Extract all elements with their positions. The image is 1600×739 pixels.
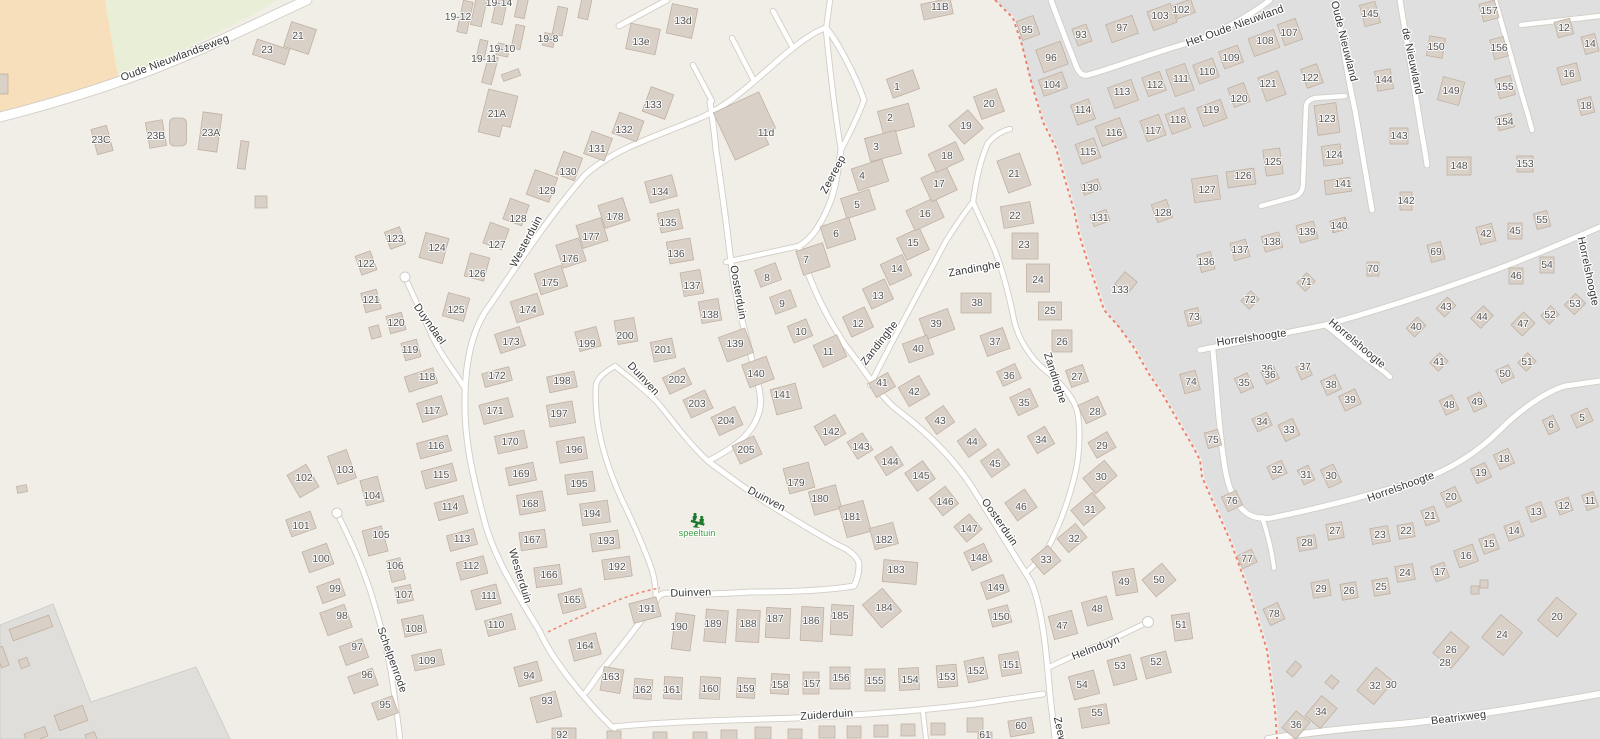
svg-text:151: 151 — [1002, 660, 1020, 671]
svg-text:5: 5 — [1579, 413, 1585, 424]
svg-text:53: 53 — [1569, 299, 1581, 310]
svg-text:156: 156 — [1490, 43, 1508, 54]
svg-text:165: 165 — [563, 595, 581, 606]
svg-text:195: 195 — [570, 479, 588, 490]
svg-text:126: 126 — [1234, 171, 1252, 182]
svg-text:25: 25 — [1044, 306, 1056, 317]
svg-text:12: 12 — [1558, 23, 1570, 34]
svg-text:110: 110 — [488, 620, 505, 631]
svg-text:134: 134 — [651, 187, 669, 198]
svg-text:133: 133 — [644, 100, 662, 111]
svg-text:47: 47 — [1517, 319, 1529, 330]
svg-text:155: 155 — [866, 676, 884, 687]
svg-text:53: 53 — [1114, 661, 1126, 672]
svg-text:174: 174 — [519, 305, 537, 316]
svg-text:32: 32 — [1068, 534, 1080, 545]
svg-text:97: 97 — [351, 642, 363, 653]
svg-text:6: 6 — [1548, 420, 1554, 431]
svg-text:18: 18 — [1498, 454, 1510, 465]
svg-text:3: 3 — [873, 142, 879, 153]
svg-text:55: 55 — [1091, 708, 1103, 719]
svg-text:36: 36 — [1264, 370, 1276, 381]
svg-text:127: 127 — [1198, 185, 1216, 196]
svg-text:181: 181 — [843, 512, 861, 523]
svg-text:158: 158 — [771, 680, 789, 691]
svg-text:111: 111 — [1173, 74, 1189, 85]
svg-text:49: 49 — [1471, 397, 1483, 408]
svg-text:11d: 11d — [758, 128, 775, 139]
svg-text:42: 42 — [1480, 229, 1492, 240]
svg-text:142: 142 — [822, 427, 840, 438]
svg-text:15: 15 — [907, 238, 919, 249]
svg-text:11: 11 — [823, 347, 834, 358]
svg-text:150: 150 — [992, 612, 1010, 623]
svg-text:115: 115 — [1080, 147, 1097, 158]
svg-text:69: 69 — [1430, 247, 1442, 258]
svg-text:138: 138 — [701, 310, 719, 321]
svg-text:61: 61 — [979, 730, 991, 739]
svg-text:202: 202 — [668, 375, 686, 386]
svg-text:146: 146 — [936, 497, 954, 508]
svg-text:198: 198 — [553, 376, 571, 387]
svg-text:103: 103 — [1151, 11, 1169, 22]
svg-text:77: 77 — [1241, 554, 1253, 565]
svg-text:98: 98 — [336, 611, 348, 622]
svg-text:13d: 13d — [674, 16, 692, 27]
svg-text:108: 108 — [1256, 36, 1274, 47]
svg-text:30: 30 — [1325, 471, 1337, 482]
svg-text:20: 20 — [983, 99, 995, 110]
svg-text:31: 31 — [1300, 470, 1312, 481]
svg-text:145: 145 — [1361, 9, 1379, 20]
svg-text:156: 156 — [832, 673, 850, 684]
svg-text:33: 33 — [1283, 425, 1295, 436]
svg-text:106: 106 — [386, 561, 404, 572]
svg-text:73: 73 — [1188, 312, 1200, 323]
svg-text:135: 135 — [659, 218, 677, 229]
svg-text:95: 95 — [1021, 25, 1033, 36]
svg-text:122: 122 — [1301, 73, 1319, 84]
svg-text:76: 76 — [1226, 496, 1238, 507]
svg-text:129: 129 — [538, 186, 556, 197]
svg-text:25: 25 — [1375, 582, 1387, 593]
svg-text:36: 36 — [1003, 371, 1015, 382]
svg-text:74: 74 — [1185, 377, 1197, 388]
svg-text:8: 8 — [764, 273, 770, 284]
svg-text:46: 46 — [1510, 271, 1522, 282]
svg-text:131: 131 — [1091, 213, 1109, 224]
svg-text:2: 2 — [887, 113, 893, 124]
svg-text:16: 16 — [919, 209, 931, 220]
svg-text:149: 149 — [987, 583, 1005, 594]
svg-text:115: 115 — [433, 470, 450, 481]
svg-text:16: 16 — [1563, 69, 1575, 80]
svg-text:47: 47 — [1056, 621, 1068, 632]
svg-text:11: 11 — [1585, 496, 1596, 507]
svg-text:153: 153 — [1516, 159, 1534, 170]
svg-text:139: 139 — [726, 339, 744, 350]
svg-text:172: 172 — [488, 371, 506, 382]
svg-text:32: 32 — [1369, 681, 1381, 692]
svg-text:52: 52 — [1150, 657, 1162, 668]
svg-text:78: 78 — [1268, 609, 1280, 620]
svg-text:104: 104 — [1043, 80, 1061, 91]
svg-text:32: 32 — [1271, 465, 1283, 476]
svg-text:139: 139 — [1298, 227, 1316, 238]
svg-text:189: 189 — [704, 619, 722, 630]
svg-text:22: 22 — [1009, 211, 1021, 222]
svg-text:11B: 11B — [931, 2, 949, 13]
svg-text:5: 5 — [854, 200, 860, 211]
svg-text:138: 138 — [1263, 237, 1281, 248]
svg-text:114: 114 — [1075, 105, 1092, 116]
svg-text:125: 125 — [1264, 157, 1282, 168]
svg-text:164: 164 — [576, 641, 594, 652]
svg-text:7: 7 — [803, 255, 809, 266]
svg-text:Duinven: Duinven — [670, 586, 711, 599]
svg-text:12: 12 — [852, 319, 864, 330]
svg-text:70: 70 — [1367, 264, 1379, 275]
svg-text:187: 187 — [766, 614, 784, 625]
svg-text:120: 120 — [387, 318, 405, 329]
svg-text:162: 162 — [634, 685, 652, 696]
svg-text:45: 45 — [1509, 226, 1521, 237]
svg-text:105: 105 — [372, 530, 390, 541]
svg-text:102: 102 — [295, 473, 313, 484]
svg-text:168: 168 — [521, 499, 539, 510]
svg-text:126: 126 — [468, 269, 486, 280]
svg-text:97: 97 — [1116, 23, 1128, 34]
svg-text:45: 45 — [989, 459, 1001, 470]
svg-text:204: 204 — [717, 416, 735, 427]
svg-text:137: 137 — [683, 281, 701, 292]
svg-text:99: 99 — [329, 584, 341, 595]
svg-text:128: 128 — [509, 214, 527, 225]
svg-text:143: 143 — [1390, 131, 1408, 142]
svg-text:26: 26 — [1445, 645, 1457, 656]
svg-text:180: 180 — [811, 494, 829, 505]
svg-text:1: 1 — [894, 82, 900, 93]
svg-text:154: 154 — [901, 675, 919, 686]
svg-text:24: 24 — [1399, 568, 1411, 579]
svg-text:19-12: 19-12 — [445, 12, 472, 23]
svg-text:95: 95 — [379, 700, 391, 711]
svg-text:113: 113 — [1114, 87, 1131, 98]
svg-text:48: 48 — [1091, 604, 1103, 615]
svg-text:speeltuin: speeltuin — [679, 528, 716, 538]
svg-text:177: 177 — [582, 232, 600, 243]
svg-text:35: 35 — [1238, 378, 1250, 389]
svg-text:51: 51 — [1175, 620, 1187, 631]
svg-text:117: 117 — [1145, 126, 1162, 137]
svg-text:143: 143 — [852, 442, 870, 453]
svg-text:121: 121 — [1259, 79, 1277, 90]
svg-text:10: 10 — [795, 327, 807, 338]
svg-text:34: 34 — [1315, 707, 1327, 718]
svg-text:18: 18 — [941, 151, 953, 162]
svg-text:173: 173 — [502, 337, 520, 348]
svg-text:203: 203 — [688, 399, 706, 410]
svg-text:142: 142 — [1397, 196, 1415, 207]
svg-text:112: 112 — [1147, 80, 1164, 91]
svg-text:19-8: 19-8 — [538, 34, 559, 45]
svg-text:171: 171 — [486, 406, 504, 417]
svg-text:145: 145 — [912, 471, 930, 482]
svg-text:140: 140 — [747, 369, 765, 380]
svg-text:176: 176 — [561, 254, 579, 265]
svg-text:103: 103 — [336, 465, 354, 476]
svg-text:44: 44 — [1476, 312, 1488, 323]
svg-text:200: 200 — [616, 331, 634, 342]
svg-text:35: 35 — [1018, 398, 1030, 409]
svg-text:144: 144 — [881, 457, 899, 468]
svg-text:28: 28 — [1439, 658, 1451, 669]
svg-text:26: 26 — [1343, 586, 1355, 597]
svg-text:21: 21 — [1008, 169, 1020, 180]
svg-text:55: 55 — [1536, 215, 1548, 226]
svg-text:41: 41 — [876, 378, 888, 389]
svg-text:109: 109 — [418, 656, 436, 667]
svg-text:33: 33 — [1040, 555, 1052, 566]
svg-text:167: 167 — [523, 535, 541, 546]
svg-text:40: 40 — [912, 344, 924, 355]
svg-text:27: 27 — [1329, 526, 1341, 537]
svg-text:46: 46 — [1015, 502, 1027, 513]
svg-text:107: 107 — [1280, 28, 1298, 39]
svg-text:147: 147 — [960, 524, 978, 535]
svg-text:186: 186 — [802, 616, 820, 627]
svg-text:148: 148 — [970, 553, 988, 564]
svg-text:136: 136 — [667, 249, 685, 260]
svg-text:29: 29 — [1315, 584, 1327, 595]
svg-text:163: 163 — [602, 672, 620, 683]
svg-text:178: 178 — [606, 212, 624, 223]
svg-text:94: 94 — [523, 671, 535, 682]
svg-text:196: 196 — [565, 445, 583, 456]
svg-text:13: 13 — [872, 291, 884, 302]
svg-text:144: 144 — [1375, 75, 1393, 86]
svg-text:141: 141 — [1334, 179, 1352, 190]
svg-text:36: 36 — [1290, 720, 1302, 731]
svg-text:28: 28 — [1301, 538, 1313, 549]
svg-text:93: 93 — [1075, 30, 1087, 41]
svg-text:27: 27 — [1071, 372, 1083, 383]
svg-text:118: 118 — [1170, 115, 1187, 126]
svg-text:19-11: 19-11 — [471, 54, 497, 65]
svg-text:100: 100 — [312, 554, 330, 565]
svg-text:104: 104 — [363, 491, 381, 502]
svg-text:155: 155 — [1496, 82, 1514, 93]
svg-text:192: 192 — [608, 562, 626, 573]
svg-text:75: 75 — [1207, 435, 1219, 446]
svg-text:157: 157 — [803, 679, 821, 690]
svg-text:18: 18 — [1580, 101, 1592, 112]
svg-text:113: 113 — [454, 534, 471, 545]
svg-text:136: 136 — [1197, 257, 1215, 268]
svg-text:23: 23 — [261, 45, 273, 56]
svg-text:17: 17 — [933, 179, 945, 190]
svg-text:175: 175 — [541, 278, 559, 289]
svg-text:13: 13 — [1530, 507, 1542, 518]
svg-text:39: 39 — [930, 319, 942, 330]
svg-text:149: 149 — [1442, 86, 1460, 97]
svg-text:183: 183 — [887, 565, 905, 576]
svg-text:4: 4 — [859, 171, 865, 182]
svg-text:12: 12 — [1558, 501, 1570, 512]
svg-text:34: 34 — [1035, 435, 1047, 446]
svg-text:130: 130 — [559, 167, 577, 178]
svg-text:107: 107 — [395, 590, 413, 601]
svg-text:37: 37 — [989, 337, 1001, 348]
svg-text:92: 92 — [556, 730, 568, 739]
svg-text:159: 159 — [737, 684, 755, 695]
svg-text:111: 111 — [481, 591, 497, 602]
svg-text:160: 160 — [701, 684, 719, 695]
svg-text:6: 6 — [833, 229, 839, 240]
svg-text:19: 19 — [960, 121, 972, 132]
svg-text:114: 114 — [442, 502, 459, 513]
svg-text:188: 188 — [739, 619, 757, 630]
svg-text:54: 54 — [1076, 680, 1088, 691]
svg-text:50: 50 — [1153, 575, 1165, 586]
svg-text:20: 20 — [1445, 492, 1457, 503]
svg-text:141: 141 — [773, 390, 791, 401]
svg-text:116: 116 — [428, 441, 445, 452]
svg-text:119: 119 — [402, 345, 419, 356]
svg-text:60: 60 — [1015, 721, 1027, 732]
svg-text:124: 124 — [1325, 150, 1343, 161]
svg-text:102: 102 — [1172, 5, 1190, 16]
svg-text:101: 101 — [292, 521, 310, 532]
svg-text:201: 201 — [654, 345, 672, 356]
svg-text:51: 51 — [1521, 357, 1533, 368]
svg-text:182: 182 — [875, 535, 893, 546]
svg-text:21: 21 — [1424, 511, 1436, 522]
svg-text:170: 170 — [501, 437, 519, 448]
svg-text:54: 54 — [1541, 260, 1553, 271]
svg-text:185: 185 — [831, 611, 849, 622]
svg-text:23C: 23C — [91, 135, 111, 146]
svg-text:184: 184 — [875, 603, 893, 614]
svg-text:29: 29 — [1096, 441, 1108, 452]
svg-text:124: 124 — [428, 243, 446, 254]
svg-text:190: 190 — [670, 622, 688, 633]
svg-text:23: 23 — [1374, 530, 1386, 541]
svg-text:193: 193 — [597, 536, 615, 547]
svg-text:125: 125 — [447, 305, 465, 316]
svg-text:34: 34 — [1256, 417, 1268, 428]
svg-text:19-14: 19-14 — [486, 0, 513, 9]
svg-text:44: 44 — [966, 437, 978, 448]
svg-text:71: 71 — [1300, 277, 1312, 288]
svg-text:30: 30 — [1095, 472, 1107, 483]
svg-text:39: 39 — [1344, 395, 1356, 406]
svg-text:24: 24 — [1496, 630, 1508, 641]
svg-text:117: 117 — [424, 406, 441, 417]
svg-text:169: 169 — [512, 469, 530, 480]
svg-text:157: 157 — [1480, 6, 1498, 17]
svg-text:132: 132 — [615, 125, 633, 136]
svg-text:110: 110 — [1199, 67, 1216, 78]
svg-text:154: 154 — [1496, 117, 1514, 128]
svg-text:20: 20 — [1551, 612, 1563, 623]
svg-text:109: 109 — [1222, 53, 1240, 64]
svg-text:118: 118 — [419, 372, 436, 383]
svg-text:38: 38 — [971, 298, 983, 309]
svg-text:205: 205 — [737, 445, 755, 456]
svg-text:28: 28 — [1089, 407, 1101, 418]
svg-text:131: 131 — [588, 144, 606, 155]
svg-text:121: 121 — [362, 295, 380, 306]
svg-text:41: 41 — [1433, 357, 1445, 368]
svg-text:161: 161 — [663, 685, 681, 696]
svg-text:197: 197 — [550, 409, 568, 420]
svg-text:116: 116 — [1106, 128, 1123, 139]
svg-text:21: 21 — [292, 31, 304, 42]
svg-text:23: 23 — [1018, 240, 1030, 251]
svg-text:48: 48 — [1443, 400, 1455, 411]
svg-text:38: 38 — [1325, 380, 1337, 391]
svg-text:96: 96 — [1045, 53, 1057, 64]
svg-text:150: 150 — [1427, 42, 1445, 53]
svg-text:122: 122 — [357, 259, 375, 270]
svg-text:19: 19 — [1475, 468, 1487, 479]
svg-text:24: 24 — [1032, 275, 1044, 286]
svg-text:42: 42 — [908, 387, 920, 398]
svg-text:30: 30 — [1385, 680, 1397, 691]
svg-text:93: 93 — [541, 696, 553, 707]
svg-text:21A: 21A — [488, 109, 507, 120]
svg-text:179: 179 — [787, 478, 805, 489]
svg-text:43: 43 — [1440, 302, 1452, 313]
svg-text:128: 128 — [1154, 208, 1172, 219]
svg-text:153: 153 — [938, 672, 956, 683]
svg-text:15: 15 — [1483, 539, 1495, 550]
svg-text:23A: 23A — [202, 128, 221, 139]
svg-text:112: 112 — [463, 561, 480, 572]
svg-text:191: 191 — [638, 604, 656, 615]
svg-text:43: 43 — [934, 416, 946, 427]
svg-text:17: 17 — [1434, 567, 1446, 578]
svg-text:9: 9 — [779, 299, 785, 310]
svg-text:96: 96 — [361, 670, 373, 681]
svg-text:52: 52 — [1544, 310, 1556, 321]
svg-text:31: 31 — [1084, 505, 1096, 516]
svg-text:130: 130 — [1081, 183, 1099, 194]
svg-text:37: 37 — [1299, 362, 1311, 373]
svg-text:137: 137 — [1231, 245, 1249, 256]
svg-text:133: 133 — [1111, 285, 1129, 296]
svg-text:50: 50 — [1499, 369, 1511, 380]
svg-text:140: 140 — [1330, 221, 1348, 232]
svg-text:194: 194 — [583, 509, 601, 520]
svg-text:26: 26 — [1056, 337, 1068, 348]
svg-text:123: 123 — [1318, 114, 1336, 125]
svg-text:13e: 13e — [632, 37, 650, 48]
svg-text:23B: 23B — [147, 131, 166, 142]
svg-text:152: 152 — [967, 666, 985, 677]
svg-text:16: 16 — [1460, 551, 1472, 562]
svg-text:120: 120 — [1230, 94, 1248, 105]
svg-text:22: 22 — [1400, 526, 1412, 537]
svg-text:148: 148 — [1450, 161, 1468, 172]
svg-text:127: 127 — [488, 240, 506, 251]
svg-text:108: 108 — [405, 624, 423, 635]
svg-text:14: 14 — [1584, 39, 1596, 50]
svg-text:14: 14 — [1508, 526, 1520, 537]
svg-text:199: 199 — [578, 339, 596, 350]
svg-text:49: 49 — [1118, 577, 1130, 588]
